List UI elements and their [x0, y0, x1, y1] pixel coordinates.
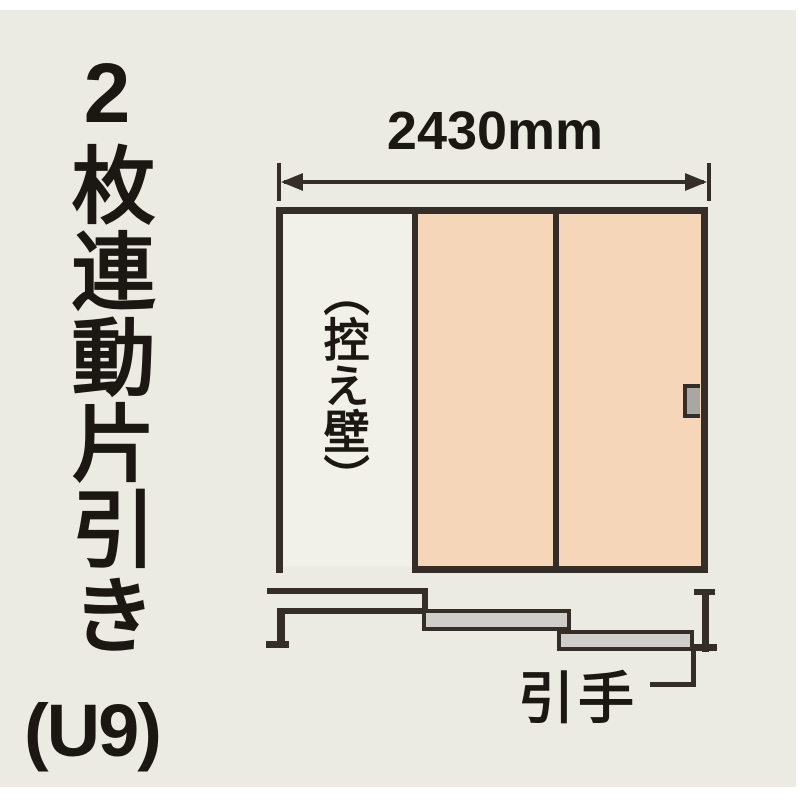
product-title: 2枚連動片引き — [62, 46, 151, 658]
plan-wall-end-foot — [266, 641, 289, 648]
plan-door-panel-1 — [422, 609, 571, 631]
handle-callout-label: 引手 — [518, 654, 638, 735]
dimension-width-label: 2430mm — [280, 100, 710, 162]
plan-right-jamb-post — [702, 590, 709, 652]
elevation-frame-top — [276, 207, 708, 214]
dimension-arrow-line — [284, 180, 704, 184]
plan-wall-bottom-line — [277, 608, 428, 614]
plan-wall-top-line — [267, 588, 428, 594]
diagram-canvas: 2枚連動片引き (U9) 2430mm （控え壁） 引手 — [0, 0, 800, 800]
plan-door-panel-2 — [557, 630, 694, 651]
dimension-arrowhead-left-icon — [281, 173, 303, 191]
catalog-page-background: 2枚連動片引き (U9) 2430mm （控え壁） 引手 — [0, 10, 796, 787]
door-panel-divider — [553, 214, 559, 566]
pocket-wall-label: （控え壁） — [318, 270, 369, 500]
elevation-frame-left — [276, 207, 283, 573]
elevation-frame-right — [701, 207, 708, 573]
door-panel-left-edge — [412, 214, 418, 566]
handle-callout-leader-horizontal — [650, 682, 696, 687]
elevation-frame-bottom — [412, 566, 708, 573]
door-handle-icon — [683, 384, 700, 418]
plan-right-jamb-cap-top — [694, 589, 715, 595]
product-code: (U9) — [24, 688, 160, 773]
dimension-arrowhead-right-icon — [685, 173, 707, 191]
dimension-tick-right — [707, 163, 711, 201]
